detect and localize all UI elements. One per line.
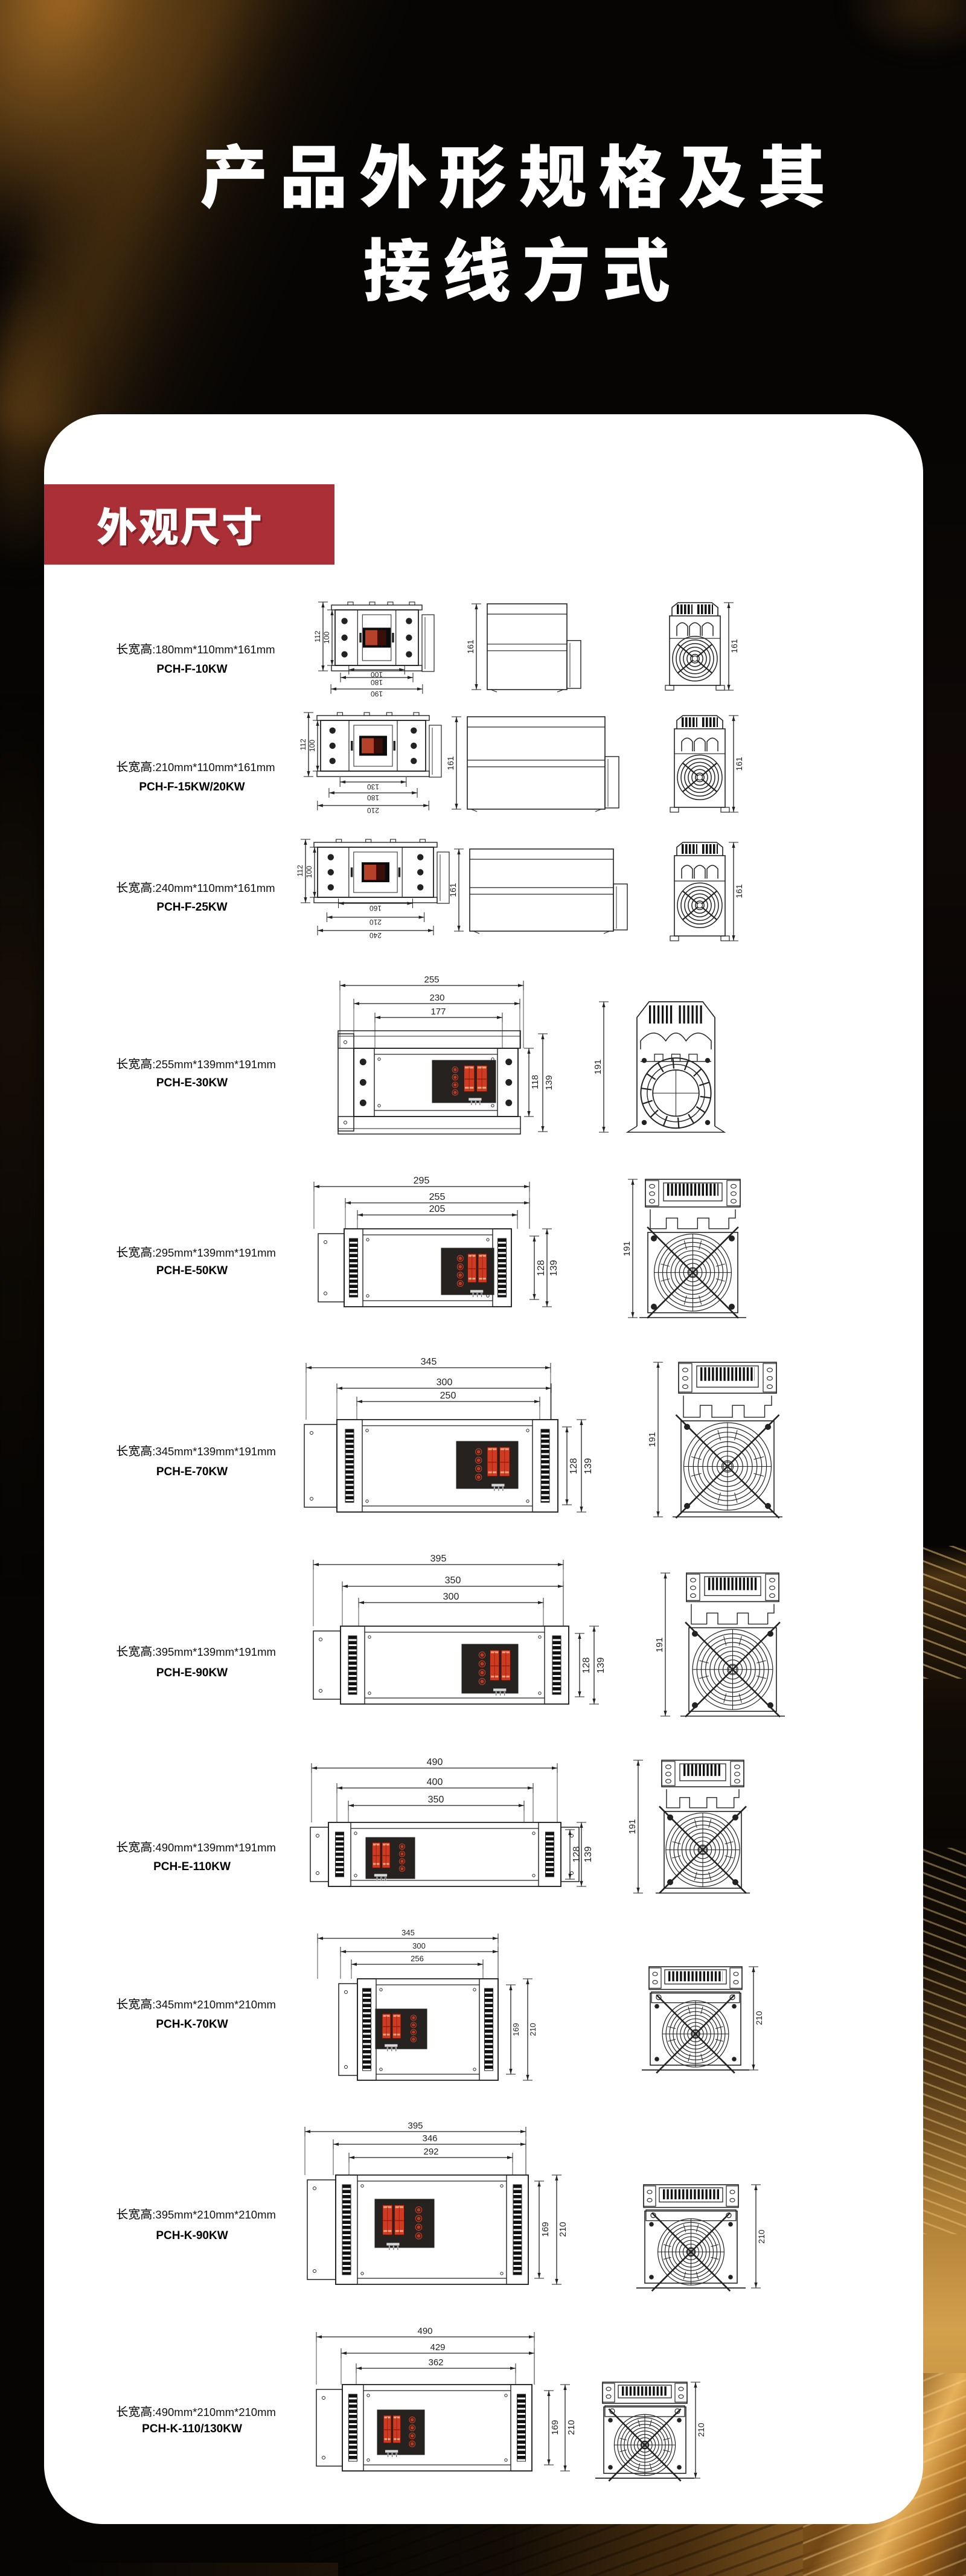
svg-text:255: 255 xyxy=(424,975,439,985)
svg-text:161: 161 xyxy=(448,883,458,897)
svg-text::395mm*139mm*191mm: :395mm*139mm*191mm xyxy=(152,1645,276,1658)
svg-text:230: 230 xyxy=(429,993,444,1003)
svg-text:395: 395 xyxy=(408,2121,423,2131)
svg-text:112: 112 xyxy=(296,865,304,876)
svg-text:255: 255 xyxy=(429,1192,446,1202)
svg-text:169: 169 xyxy=(511,2023,520,2036)
svg-text:210: 210 xyxy=(528,2023,537,2036)
svg-text:300: 300 xyxy=(437,1377,453,1388)
svg-text:128: 128 xyxy=(536,1260,546,1277)
svg-text:210: 210 xyxy=(754,2011,764,2025)
svg-text:191: 191 xyxy=(627,1819,638,1834)
svg-text:PCH-E-90KW: PCH-E-90KW xyxy=(156,1667,228,1679)
svg-text::345mm*210mm*210mm: :345mm*210mm*210mm xyxy=(152,1998,276,2011)
svg-text:PCH-K-90KW: PCH-K-90KW xyxy=(156,2229,228,2242)
svg-text:139: 139 xyxy=(583,1458,593,1475)
svg-text:PCH-E-50KW: PCH-E-50KW xyxy=(156,1264,228,1277)
svg-text:210: 210 xyxy=(369,918,382,926)
svg-text:210: 210 xyxy=(696,2423,706,2437)
svg-text:295: 295 xyxy=(414,1176,430,1186)
svg-text:345: 345 xyxy=(401,1928,415,1937)
svg-text:112: 112 xyxy=(299,739,307,750)
svg-text:169: 169 xyxy=(540,2222,551,2237)
svg-text:191: 191 xyxy=(647,1432,657,1447)
svg-text:112: 112 xyxy=(313,630,322,642)
svg-text:128: 128 xyxy=(581,1658,592,1674)
svg-text:292: 292 xyxy=(423,2147,438,2157)
svg-text:346: 346 xyxy=(422,2133,437,2144)
svg-text:PCH-E-110KW: PCH-E-110KW xyxy=(153,1860,231,1873)
svg-text:PCH-F-10KW: PCH-F-10KW xyxy=(156,663,227,676)
svg-text:350: 350 xyxy=(445,1575,461,1586)
svg-text:256: 256 xyxy=(411,1954,424,1963)
svg-text:191: 191 xyxy=(622,1241,632,1256)
svg-text:PCH-K-110/130KW: PCH-K-110/130KW xyxy=(142,2423,242,2435)
svg-text:100: 100 xyxy=(308,740,316,752)
svg-text:180: 180 xyxy=(367,793,379,802)
svg-text:161: 161 xyxy=(729,639,739,653)
svg-text::490mm*139mm*191mm: :490mm*139mm*191mm xyxy=(152,1841,276,1854)
svg-text:180: 180 xyxy=(371,678,383,687)
svg-text::345mm*139mm*191mm: :345mm*139mm*191mm xyxy=(152,1445,276,1458)
svg-text:139: 139 xyxy=(583,1847,593,1863)
svg-text:161: 161 xyxy=(465,639,475,654)
svg-text:PCH-K-70KW: PCH-K-70KW xyxy=(156,2018,228,2031)
svg-text:490: 490 xyxy=(427,1757,443,1767)
svg-text:128: 128 xyxy=(572,1847,582,1863)
svg-text:190: 190 xyxy=(371,690,383,698)
svg-text:240: 240 xyxy=(369,931,382,940)
svg-text:139: 139 xyxy=(549,1260,559,1277)
svg-text::295mm*139mm*191mm: :295mm*139mm*191mm xyxy=(152,1246,276,1259)
svg-text:191: 191 xyxy=(654,1637,665,1652)
svg-text:250: 250 xyxy=(440,1391,456,1401)
svg-text:139: 139 xyxy=(596,1658,606,1674)
svg-text:161: 161 xyxy=(734,884,744,899)
svg-text::210mm*110mm*161mm: :210mm*110mm*161mm xyxy=(152,761,275,774)
svg-text:160: 160 xyxy=(369,904,382,912)
svg-text:429: 429 xyxy=(430,2342,445,2353)
svg-text:395: 395 xyxy=(430,1554,447,1564)
svg-text::240mm*110mm*161mm: :240mm*110mm*161mm xyxy=(152,882,275,894)
svg-text:PCH-F-15KW/20KW: PCH-F-15KW/20KW xyxy=(139,781,245,793)
svg-text:362: 362 xyxy=(428,2357,443,2368)
svg-text:210: 210 xyxy=(558,2222,568,2237)
svg-text:400: 400 xyxy=(427,1777,443,1787)
svg-text:PCH-E-70KW: PCH-E-70KW xyxy=(156,1466,228,1478)
svg-text:100: 100 xyxy=(322,632,331,644)
svg-text:161: 161 xyxy=(446,756,455,771)
svg-text:PCH-E-30KW: PCH-E-30KW xyxy=(156,1077,228,1089)
svg-text:130: 130 xyxy=(367,783,379,791)
svg-text:118: 118 xyxy=(530,1075,540,1089)
svg-text:210: 210 xyxy=(756,2229,766,2244)
svg-text:100: 100 xyxy=(305,866,313,878)
svg-text:177: 177 xyxy=(430,1007,446,1017)
svg-text::490mm*210mm*210mm: :490mm*210mm*210mm xyxy=(152,2406,276,2418)
svg-text:210: 210 xyxy=(367,806,379,815)
svg-text:350: 350 xyxy=(428,1795,444,1805)
svg-text:490: 490 xyxy=(417,2326,432,2336)
svg-text:169: 169 xyxy=(550,2420,560,2435)
svg-text:161: 161 xyxy=(734,757,744,771)
svg-text:345: 345 xyxy=(421,1357,437,1367)
svg-text::180mm*110mm*161mm: :180mm*110mm*161mm xyxy=(152,643,275,656)
svg-text:PCH-F-25KW: PCH-F-25KW xyxy=(156,901,227,914)
svg-text::395mm*210mm*210mm: :395mm*210mm*210mm xyxy=(152,2208,276,2221)
svg-text:300: 300 xyxy=(412,1941,426,1950)
svg-text:205: 205 xyxy=(429,1204,446,1214)
svg-text:210: 210 xyxy=(566,2420,577,2435)
svg-text:139: 139 xyxy=(544,1075,554,1090)
svg-text:300: 300 xyxy=(443,1592,459,1602)
svg-text:191: 191 xyxy=(593,1059,603,1074)
svg-text::255mm*139mm*191mm: :255mm*139mm*191mm xyxy=(152,1058,276,1071)
svg-text:128: 128 xyxy=(569,1458,579,1475)
